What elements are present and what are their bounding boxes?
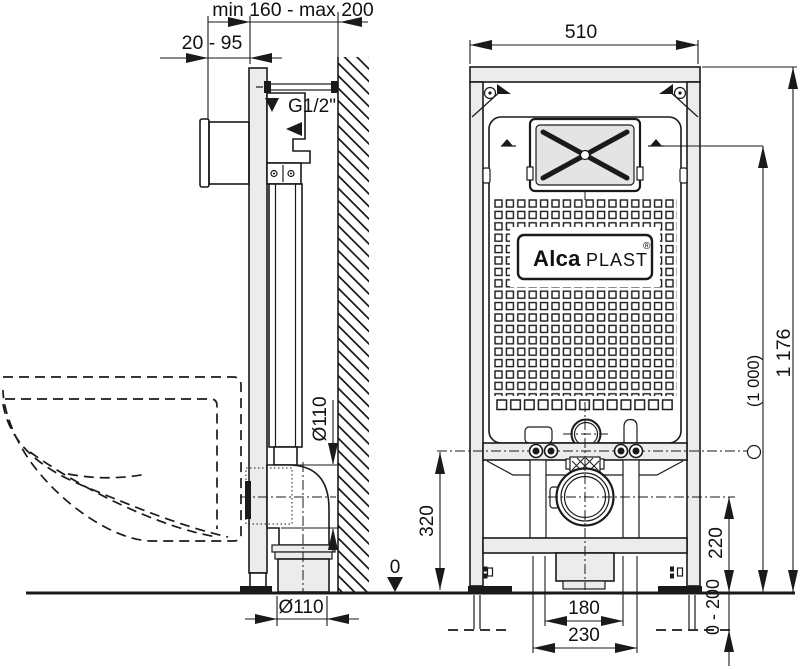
dim-flush-plate-height: (1 000): [745, 355, 763, 407]
brand-name-regular: PLAST: [586, 250, 648, 270]
dim-crossbar-height: 320: [417, 505, 438, 537]
dim-floor-pipe-diameter: Ø110: [278, 597, 323, 618]
dim-frame-to-wall: min 160 - max 200: [212, 0, 374, 21]
cistern-side-profile: [267, 93, 310, 465]
floor-level-label: 0: [390, 557, 401, 578]
inlet-bracket: [525, 427, 552, 443]
flush-pipe-panel: [269, 184, 302, 447]
outlet-box-lip: [563, 581, 605, 589]
support-tube-left: [530, 460, 546, 538]
leg-adjuster-left: [488, 568, 493, 576]
dim-leg-adjustment: 0 - 200: [703, 579, 723, 635]
flange-plate: [200, 119, 209, 187]
front-view: Alca PLAST ®: [417, 21, 798, 666]
toilet-bowl-outline: [3, 377, 241, 541]
dim-water-connection: G1/2": [288, 96, 336, 117]
drawing-canvas: min 160 - max 200 20 - 95 G1/2" Ø110: [0, 0, 800, 669]
leg-adjuster-right: [678, 568, 683, 576]
registered-trademark-icon: ®: [643, 241, 651, 252]
mounting-bracket: [267, 163, 301, 184]
outlet-stub: [274, 447, 297, 465]
right-rail: [687, 82, 700, 586]
dim-total-height: 1 176: [773, 329, 795, 378]
left-rail: [470, 82, 483, 586]
dim-outlet-inner-spacing: 180: [568, 598, 600, 619]
tank-clip-left: [483, 168, 490, 183]
threaded-wall-rod: [256, 81, 338, 93]
dim-elbow-diameter: Ø110: [310, 396, 331, 441]
dim-front-offset: 20 - 95: [182, 32, 243, 54]
floor-level-marker: 0: [387, 557, 403, 592]
dim-outlet-height: 220: [706, 527, 727, 559]
flush-pipe-flange: [200, 119, 249, 187]
floor-level-icon: [387, 577, 403, 592]
dim-outlet-outer-spacing: 230: [568, 625, 600, 646]
window-clip-right: [637, 167, 643, 180]
side-view: min 160 - max 200 20 - 95 G1/2" Ø110: [3, 0, 374, 626]
flange-ribs: [209, 122, 249, 184]
wall-section: [338, 57, 369, 593]
installation-frame-technical-drawing: min 160 - max 200 20 - 95 G1/2" Ø110: [0, 0, 800, 669]
window-clip-left: [527, 167, 533, 180]
dim-width: 510: [565, 21, 598, 43]
top-crossmember: [470, 67, 700, 82]
post-foot-block: [250, 573, 266, 587]
window-center-pivot: [581, 151, 590, 160]
support-tube-right: [623, 460, 639, 538]
reference-circle: [748, 446, 761, 459]
wall-hatching: [338, 57, 369, 593]
brand-name-bold: Alca: [533, 246, 581, 271]
tank-clip-right: [680, 168, 687, 183]
